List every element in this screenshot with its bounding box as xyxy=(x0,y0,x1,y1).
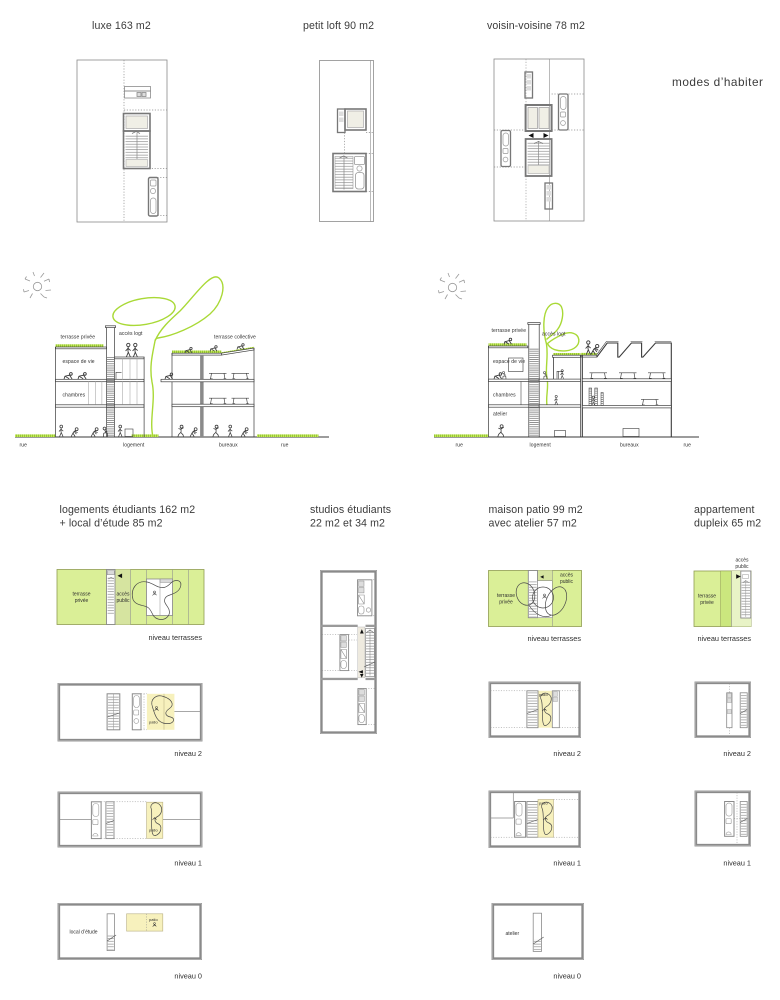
svg-text:niveau terrasses: niveau terrasses xyxy=(527,634,581,643)
svg-text:dupleix 65 m2: dupleix 65 m2 xyxy=(694,518,761,530)
svg-text:public: public xyxy=(735,564,749,570)
svg-text:logements étudiants 162 m2: logements étudiants 162 m2 xyxy=(60,504,196,516)
svg-text:patio: patio xyxy=(149,828,158,833)
svg-text:local d’étude: local d’étude xyxy=(70,930,98,936)
svg-text:petit loft 90 m2: petit loft 90 m2 xyxy=(303,20,374,32)
svg-text:logement: logement xyxy=(530,443,552,449)
svg-text:accès logt: accès logt xyxy=(119,331,143,337)
svg-text:chambres: chambres xyxy=(63,393,86,399)
svg-text:accès: accès xyxy=(560,573,574,579)
svg-text:accès: accès xyxy=(116,592,130,598)
svg-text:terrasse: terrasse xyxy=(72,592,90,598)
svg-text:modes d’habiter: modes d’habiter xyxy=(672,75,763,89)
svg-text:logement: logement xyxy=(123,443,145,449)
svg-text:niveau 0: niveau 0 xyxy=(174,972,202,981)
svg-text:atelier: atelier xyxy=(493,412,508,418)
svg-text:terrasse privée: terrasse privée xyxy=(492,328,527,334)
svg-text:voisin-voisine 78 m2: voisin-voisine 78 m2 xyxy=(487,20,585,32)
svg-text:rue: rue xyxy=(20,443,28,449)
svg-text:22 m2 et 34 m2: 22 m2 et 34 m2 xyxy=(310,518,385,530)
svg-text:maison patio 99 m2: maison patio 99 m2 xyxy=(489,504,583,516)
svg-text:espace de vie: espace de vie xyxy=(493,359,525,365)
svg-text:niveau terrasses: niveau terrasses xyxy=(697,634,751,643)
svg-text:privée: privée xyxy=(700,600,714,606)
svg-text:patio: patio xyxy=(149,917,158,922)
svg-text:patio: patio xyxy=(539,801,548,806)
svg-text:avec atelier 57 m2: avec atelier 57 m2 xyxy=(489,518,577,530)
svg-text:niveau terrasses: niveau terrasses xyxy=(148,633,202,642)
svg-text:rue: rue xyxy=(684,443,692,449)
svg-text:atelier: atelier xyxy=(506,931,520,937)
svg-text:niveau 1: niveau 1 xyxy=(723,859,751,868)
svg-text:terrasse collective: terrasse collective xyxy=(214,335,256,341)
svg-text:studios étudiants: studios étudiants xyxy=(310,504,391,516)
svg-text:niveau 0: niveau 0 xyxy=(553,972,581,981)
svg-text:terrasse: terrasse xyxy=(698,594,716,600)
svg-text:patio: patio xyxy=(539,692,548,697)
svg-text:niveau 2: niveau 2 xyxy=(553,749,581,758)
svg-text:niveau 2: niveau 2 xyxy=(174,749,202,758)
svg-text:niveau 1: niveau 1 xyxy=(553,859,581,868)
svg-text:patio: patio xyxy=(149,719,158,724)
svg-text:privée: privée xyxy=(75,598,89,604)
svg-text:rue: rue xyxy=(456,443,464,449)
svg-text:appartement: appartement xyxy=(694,504,755,516)
svg-text:privée: privée xyxy=(499,600,513,606)
svg-text:public: public xyxy=(116,598,130,604)
svg-text:public: public xyxy=(560,579,574,585)
svg-text:bureaux: bureaux xyxy=(219,443,238,449)
svg-text:+ local d’étude 85 m2: + local d’étude 85 m2 xyxy=(60,518,163,530)
svg-text:rue: rue xyxy=(281,443,289,449)
svg-text:accès logt: accès logt xyxy=(542,332,566,338)
svg-text:bureaux: bureaux xyxy=(620,443,639,449)
svg-text:chambres: chambres xyxy=(493,393,516,399)
svg-text:terrasse privée: terrasse privée xyxy=(61,335,96,341)
svg-text:niveau 2: niveau 2 xyxy=(723,749,751,758)
svg-text:luxe 163 m2: luxe 163 m2 xyxy=(92,20,151,32)
svg-text:accès: accès xyxy=(735,558,749,564)
svg-text:niveau 1: niveau 1 xyxy=(174,859,202,868)
svg-text:espace de vie: espace de vie xyxy=(63,359,95,365)
svg-text:terrasse: terrasse xyxy=(497,593,515,599)
